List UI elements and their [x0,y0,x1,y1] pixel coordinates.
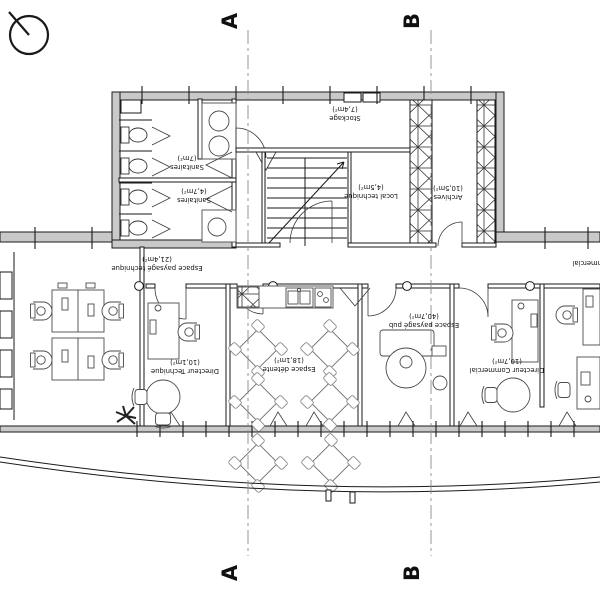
office-chair [31,302,53,320]
room-archives [236,222,496,247]
label-archives: Archives(10,5m²) [433,184,463,201]
round-table [146,380,180,414]
office-chair [492,324,514,342]
monitor [88,356,94,368]
svg-text:(21,4m²): (21,4m²) [142,255,172,263]
toilet-icon [121,189,147,205]
label-sanitaires-2: Sanitaires(4,7m²) [177,187,211,204]
svg-text:Sanitaires: Sanitaires [170,163,204,171]
label-espace-detente: Espace détente(18,1m²) [263,356,316,373]
svg-text:(4,7m²): (4,7m²) [181,187,207,195]
toilet-icon [121,220,147,236]
svg-text:(7m²): (7m²) [177,154,196,162]
monitor [531,314,537,327]
window [344,93,361,102]
washbasin [209,111,229,131]
label-espace-technique: Espace paysagé technique(21,4m²) [111,255,202,272]
svg-text:(7,4m²): (7,4m²) [332,105,358,113]
workstations-technique [31,283,124,380]
office-chair [31,351,53,369]
chair [482,386,497,404]
toilet-icon [121,158,147,174]
svg-text:Directeur Technique: Directeur Technique [151,367,219,375]
monitor [581,372,590,385]
fridge [238,287,259,307]
monitor [586,296,593,307]
staircase [262,152,351,247]
chair [555,381,570,399]
svg-text:(10,5m²): (10,5m²) [433,184,463,192]
svg-text:Espace paysagé technique: Espace paysagé technique [111,264,202,272]
phone [58,283,67,288]
stool [433,376,447,390]
workstations-commercial [555,289,600,409]
chair [132,388,147,406]
monitor [62,350,68,362]
office-chair [102,302,124,320]
section-marker-a-top: A [218,12,242,29]
room-local-technique [290,201,332,243]
label-directeur-technique: Directeur Technique(10,1m²) [151,358,219,375]
svg-text:Sanitaires: Sanitaires [177,196,211,204]
archive-racks [410,100,495,247]
table-with-chairs [228,372,288,432]
section-marker-a-bottom: A [218,564,242,581]
column [135,282,144,291]
label-local-technique: Local technique(4,5m²) [344,183,398,200]
section-marker-b-top: B [400,13,424,29]
svg-text:Local technique: Local technique [344,192,398,200]
shelving [0,252,14,420]
terrace [0,433,600,503]
label-stockage: Stockage(7,4m²) [329,105,360,122]
monitor [62,298,68,310]
column [526,282,535,291]
svg-text:(40,7m²): (40,7m²) [409,312,439,320]
workstation-pub [380,330,447,390]
cupboard [121,100,141,113]
svg-text:Archives: Archives [433,193,462,201]
svg-text:(4,5m²): (4,5m²) [358,183,384,191]
phone [86,283,95,288]
section-marker-b-bottom: B [400,565,424,581]
washbasin [208,218,226,236]
svg-text:Espace paysagé pub: Espace paysagé pub [389,321,459,329]
label-espace-commercial: Espace paysagé commercial [572,259,600,267]
stove [315,288,331,307]
svg-text:(10,1m²): (10,1m²) [170,358,200,366]
table-with-chairs [300,372,360,432]
washbasin [209,136,229,156]
label-espace-pub: Espace paysagé pub(40,7m²) [389,312,459,329]
monitor [150,320,156,334]
office-directeur-commercial [482,300,538,412]
north-arrow-icon [9,12,48,54]
plant-icon [116,406,136,424]
monitor [88,304,94,316]
room-sanitaires [119,99,266,247]
curved-facade [0,457,600,487]
column [403,282,412,291]
svg-text:Espace détente: Espace détente [263,365,316,373]
svg-text:(18,1m²): (18,1m²) [274,356,304,364]
office-chair [102,351,124,369]
toilet-icon [121,127,147,143]
office-chair [556,306,578,324]
table-with-chairs [301,433,361,493]
svg-text:Directeur Commercial: Directeur Commercial [470,366,545,374]
svg-text:(10,7m²): (10,7m²) [492,357,522,365]
svg-text:Espace paysagé commercial: Espace paysagé commercial [572,259,600,267]
floor-plan: A B A B Sanitaires(7m²) Sanitaires(4,7m²… [0,0,600,600]
svg-text:Stockage: Stockage [329,114,360,122]
round-table [496,378,530,412]
office-chair [178,323,200,341]
